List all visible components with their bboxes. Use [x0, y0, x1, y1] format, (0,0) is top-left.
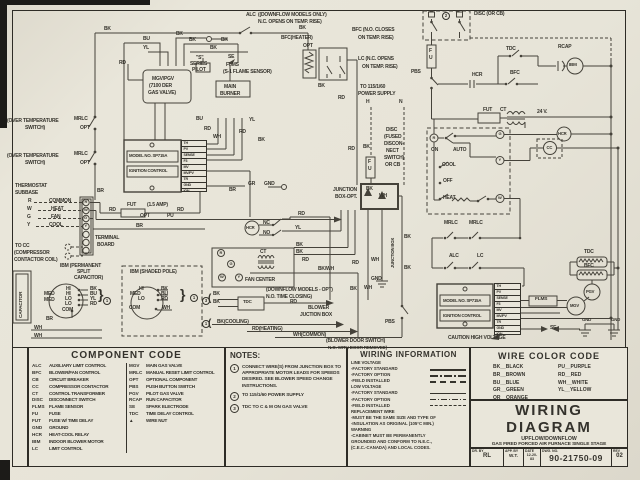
wire-color-entry: WH__WHITE [558, 380, 623, 388]
wire-color-entry: GR__GREEN [493, 387, 558, 395]
wire-color-code-panel: WIRE COLOR CODE BK__BLACKBR__BROWNBU__BL… [470, 347, 628, 400]
wiring-information-panel: WIRING INFORMATION LINE VOLTAGE-FACTORY … [347, 347, 470, 467]
component-code-col1: ALCAUXILIARY LIMIT CONTROLBFCBLOWER/FAN … [32, 363, 124, 453]
notes-title: NOTES: [226, 348, 346, 362]
wire-color-entry: PU__PURPLE [558, 364, 623, 372]
line-style-sample [430, 398, 466, 401]
scan-edge-left [0, 0, 7, 128]
component-code-col2: MGVMAIN GAS VALVEMRLCMANUAL RESET LIMIT … [129, 363, 224, 453]
note-item: 1CONNECT WIRE(S) FROM JUNCTION BOX TO AP… [226, 362, 346, 390]
wire-color-entry: YL__YELLOW [558, 387, 623, 395]
drawn-by-value: RL [472, 453, 502, 459]
component-code-row: ▲WIRE NUT [129, 418, 224, 425]
component-code-title: COMPONENT CODE [29, 348, 224, 361]
line-style-sample [430, 368, 466, 371]
component-code-row: FUTFUSE W/ TIME DELAY [32, 418, 124, 425]
line-style-sample [430, 374, 466, 377]
terminal-ign: IGN [495, 332, 520, 337]
drawn-by-cell: DR. BY RL [471, 449, 504, 466]
ignition-terminal-strip-2: THPVSENSEF3MVMV/PVTRGNDIGN [494, 283, 521, 335]
wire-color-entry: BR__BROWN [493, 372, 558, 380]
component-code-row: PGVPILOT GAS VALVE [129, 391, 224, 398]
dwg-no-cell: DWG. NO. 90-21750-09 [541, 449, 612, 466]
drawing-title: WIRING DIAGRAM [471, 401, 627, 436]
wiring-diagram-scan: THPVSENSEF3MVMV/PVTRGNDIGN THPVSENSEF3MV… [0, 0, 640, 480]
note-item: 2TO 115/1/60 POWER SUPPLY [226, 390, 346, 402]
wire-color-entry: BK__BLACK [493, 364, 558, 372]
component-code-row: DISCDISCONNECT SWITCH [32, 397, 124, 404]
component-code-row: SESPARK ELECTRODE [129, 404, 224, 411]
component-code-row: BFCBLOWER/FAN CONTROL [32, 370, 124, 377]
title-block-row: DR. BY RL APP. BY W.T. DATE 12-20-83 DWG… [470, 448, 628, 467]
scan-edge-bottom-left [0, 460, 10, 480]
title-block: WIRING DIAGRAM UPFLOW/DOWNFLOW GAS FIRED… [470, 400, 628, 448]
wire-color-entry: BU__BLUE [493, 380, 558, 388]
notes-panel: NOTES: 1CONNECT WIRE(S) FROM JUNCTION BO… [225, 347, 347, 467]
date-value: 12-20-83 [525, 453, 539, 461]
component-code-row: MGVMAIN GAS VALVE [129, 363, 224, 370]
ignition-terminal-strip: THPVSENSEF3MVMV/PVTRGNDIGN [181, 140, 207, 192]
component-code-row: MRLCMANUAL RESET LIMIT CONTROL [129, 370, 224, 377]
component-code-panel: COMPONENT CODE ALCAUXILIARY LIMIT CONTRO… [28, 347, 225, 467]
component-code-row: CTCONTROL TRANSFORMER [32, 391, 124, 398]
component-code-row: FLMSFLAME SENSOR [32, 404, 124, 411]
component-code-row: GNDGROUND [32, 425, 124, 432]
notes-list: 1CONNECT WIRE(S) FROM JUNCTION BOX TO AP… [226, 362, 346, 414]
component-code-row: ALCAUXILIARY LIMIT CONTROL [32, 363, 124, 370]
scan-edge-top [0, 0, 150, 5]
component-code-row: RCAPRUN CAPACITOR [129, 397, 224, 404]
dwg-no-value: 90-21750-09 [542, 453, 610, 463]
component-code-row: PBSPUSH BUTTON SWITCH [129, 384, 224, 391]
rev-cell-value: 02 [613, 453, 626, 459]
wiring-information-body: LINE VOLTAGE-FACTORY STANDARD-FACTORY OP… [348, 359, 469, 452]
component-code-row: CCCOMPRESSOR CONTACTOR [32, 384, 124, 391]
line-style-sample [430, 392, 466, 395]
rev-cell: REV 02 [612, 449, 627, 466]
date-cell: DATE 12-20-83 [524, 449, 541, 466]
wire-color-col2: PU__PURPLERD__REDWH__WHITEYL__YELLOW [558, 364, 623, 400]
wiring-info-line: (C.E.C.-CANADA) AND LOCAL CODES. [351, 445, 466, 451]
component-code-row: LCLIMIT CONTROL [32, 446, 124, 453]
wire-color-col1: BK__BLACKBR__BROWNBU__BLUEGR__GREENOR__O… [493, 364, 558, 400]
note-item: 3TDC TO C & M ON GAS VALVE [226, 402, 346, 414]
approved-by-value: W.T. [505, 453, 522, 458]
approved-by-cell: APP. BY W.T. [504, 449, 524, 466]
component-code-row: IBMINDOOR BLOWER MOTOR [32, 439, 124, 446]
drawing-number-strip: DWG. NO. 90-21750-09 REV 02 [12, 347, 28, 467]
component-code-row: FUFUSE [32, 411, 124, 418]
component-code-row: CBCIRCUIT BREAKER [32, 377, 124, 384]
component-code-row: HCRHEAT-COOL RELAY [32, 432, 124, 439]
component-code-row: TDCTIME DELAY CONTROL [129, 411, 224, 418]
line-style-sample [430, 404, 466, 407]
component-code-row: OPTOPTIONAL COMPONENT [129, 377, 224, 384]
wire-color-entry: RD__RED [558, 372, 623, 380]
terminal-ign: IGN [182, 189, 206, 194]
wire-color-code-title: WIRE COLOR CODE [471, 348, 627, 361]
wiring-information-title: WIRING INFORMATION [348, 348, 469, 359]
line-style-sample [430, 380, 466, 383]
